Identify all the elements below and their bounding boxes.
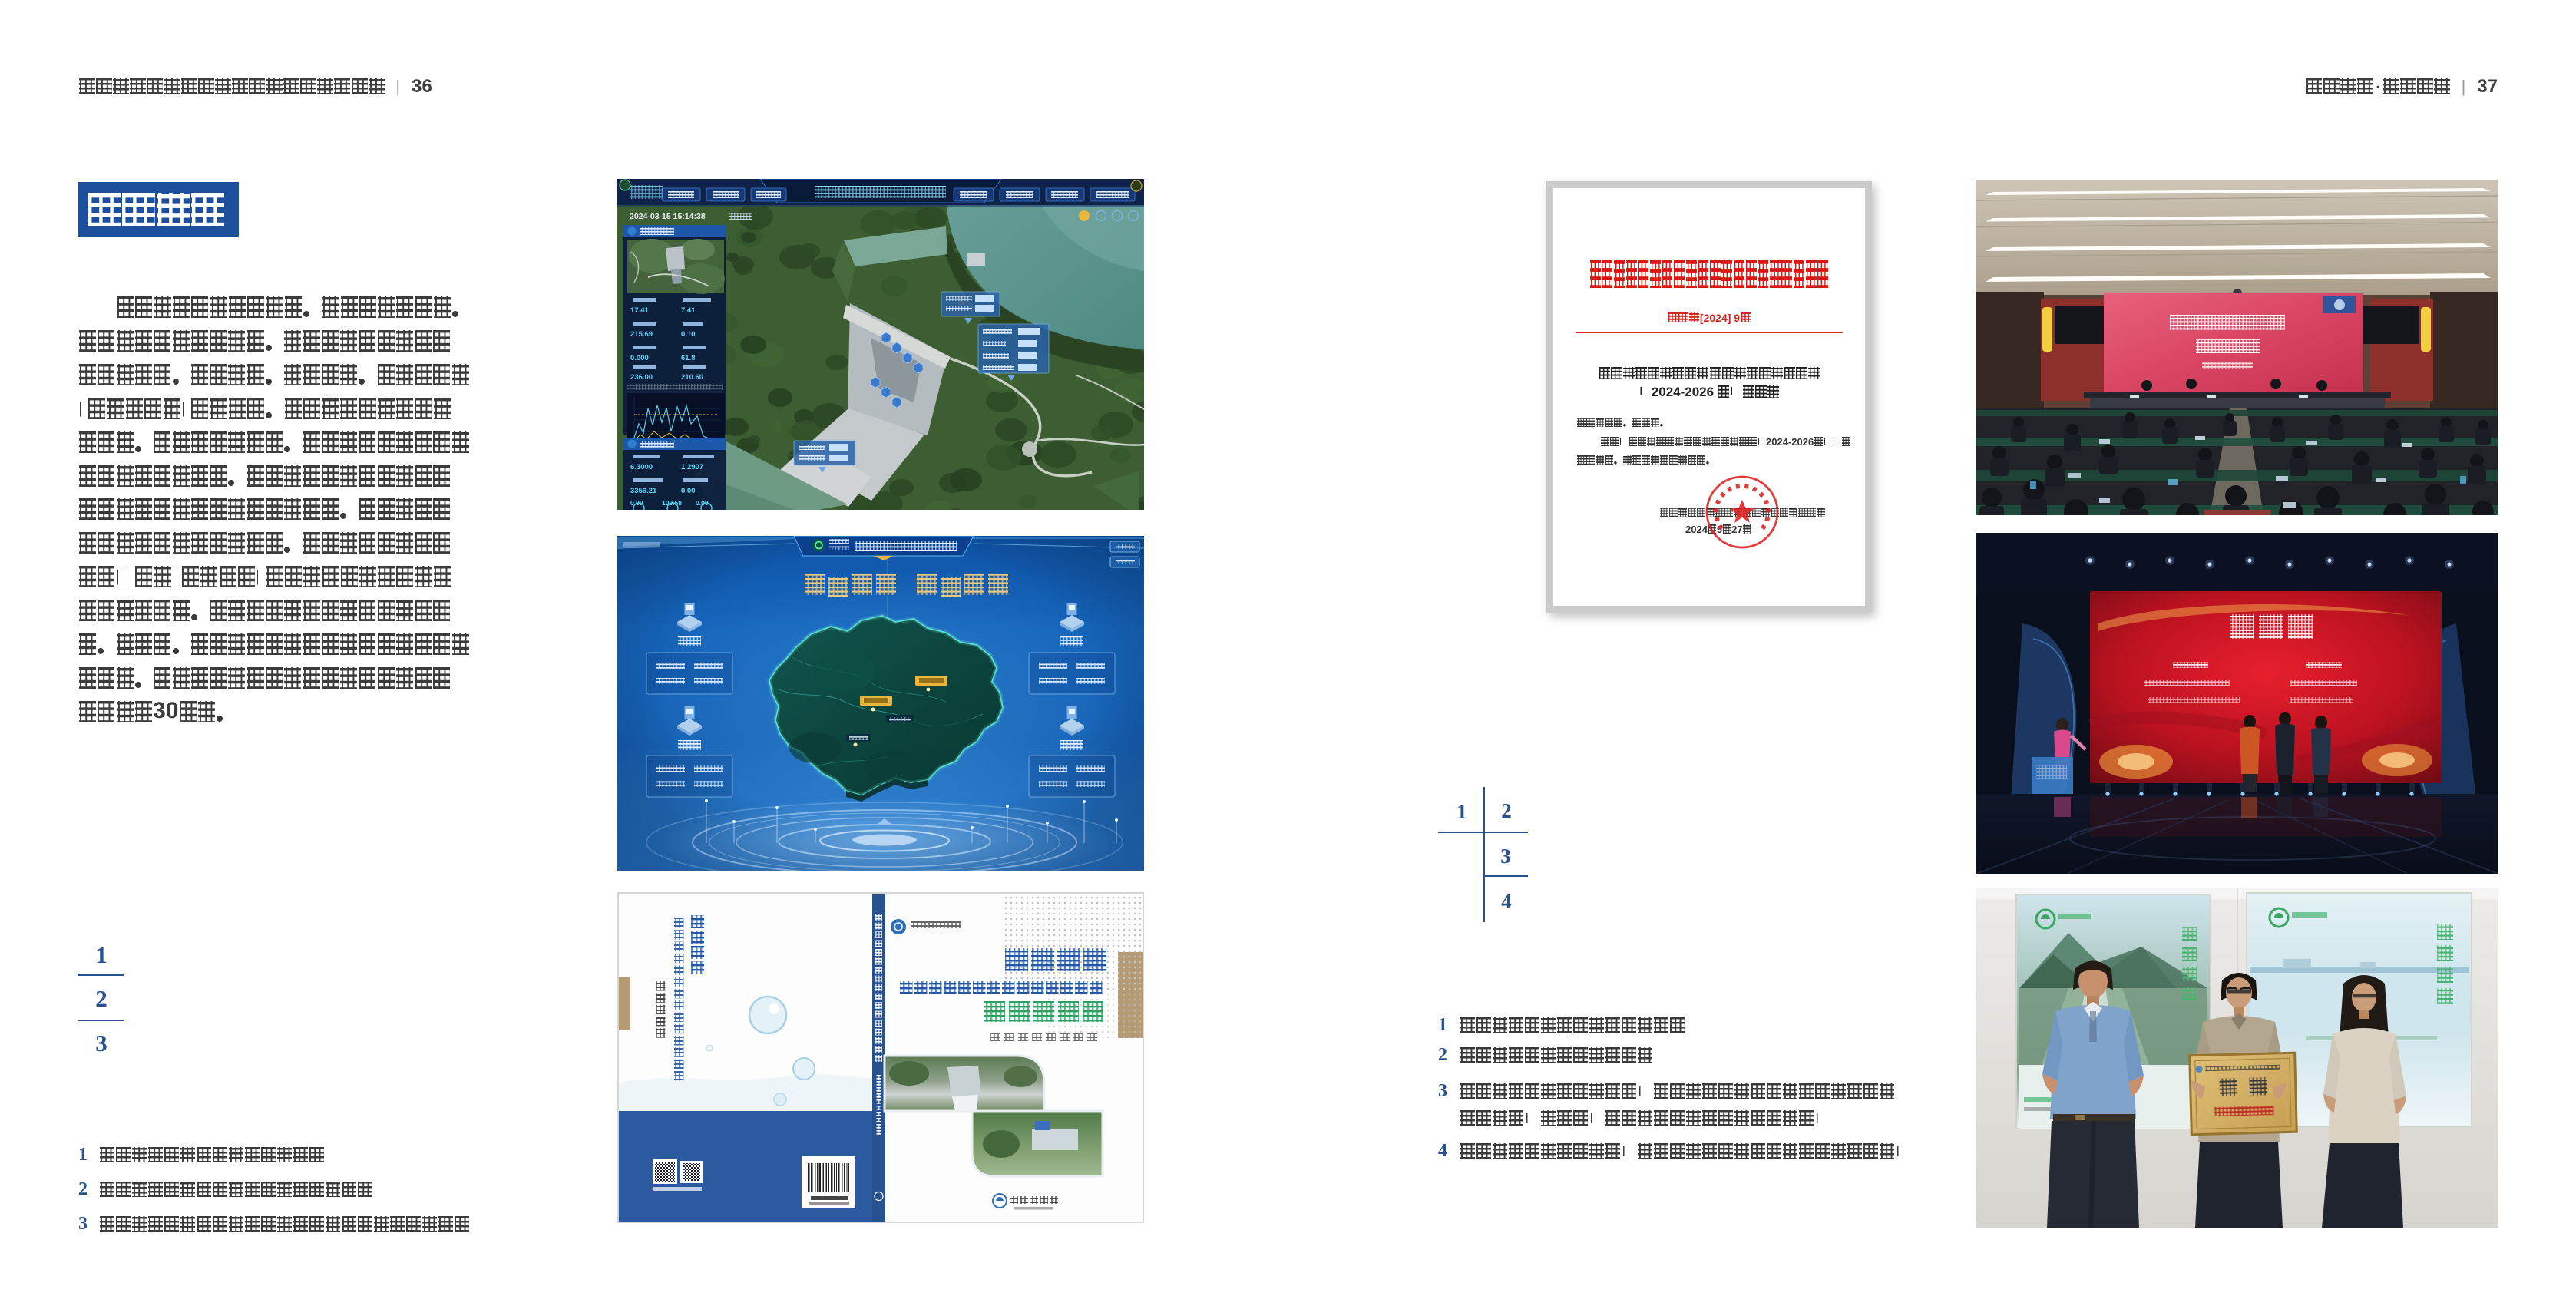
svg-text:0.00: 0.00 bbox=[681, 487, 696, 495]
svg-text:3359.21: 3359.21 bbox=[630, 487, 657, 495]
svg-text:2024-03-15 15:14:38: 2024-03-15 15:14:38 bbox=[630, 212, 706, 221]
svg-text:17.41: 17.41 bbox=[630, 306, 649, 315]
svg-text:0.000: 0.000 bbox=[630, 354, 649, 362]
svg-text:61.8: 61.8 bbox=[681, 354, 696, 362]
svg-text:210.60: 210.60 bbox=[681, 373, 703, 382]
svg-text:6.3000: 6.3000 bbox=[630, 463, 653, 471]
svg-text:215.69: 215.69 bbox=[630, 330, 653, 339]
svg-text:7.41: 7.41 bbox=[681, 306, 696, 315]
svg-text:0.10: 0.10 bbox=[681, 330, 696, 339]
svg-text:1.2907: 1.2907 bbox=[681, 463, 703, 471]
svg-text:236.00: 236.00 bbox=[630, 373, 653, 382]
